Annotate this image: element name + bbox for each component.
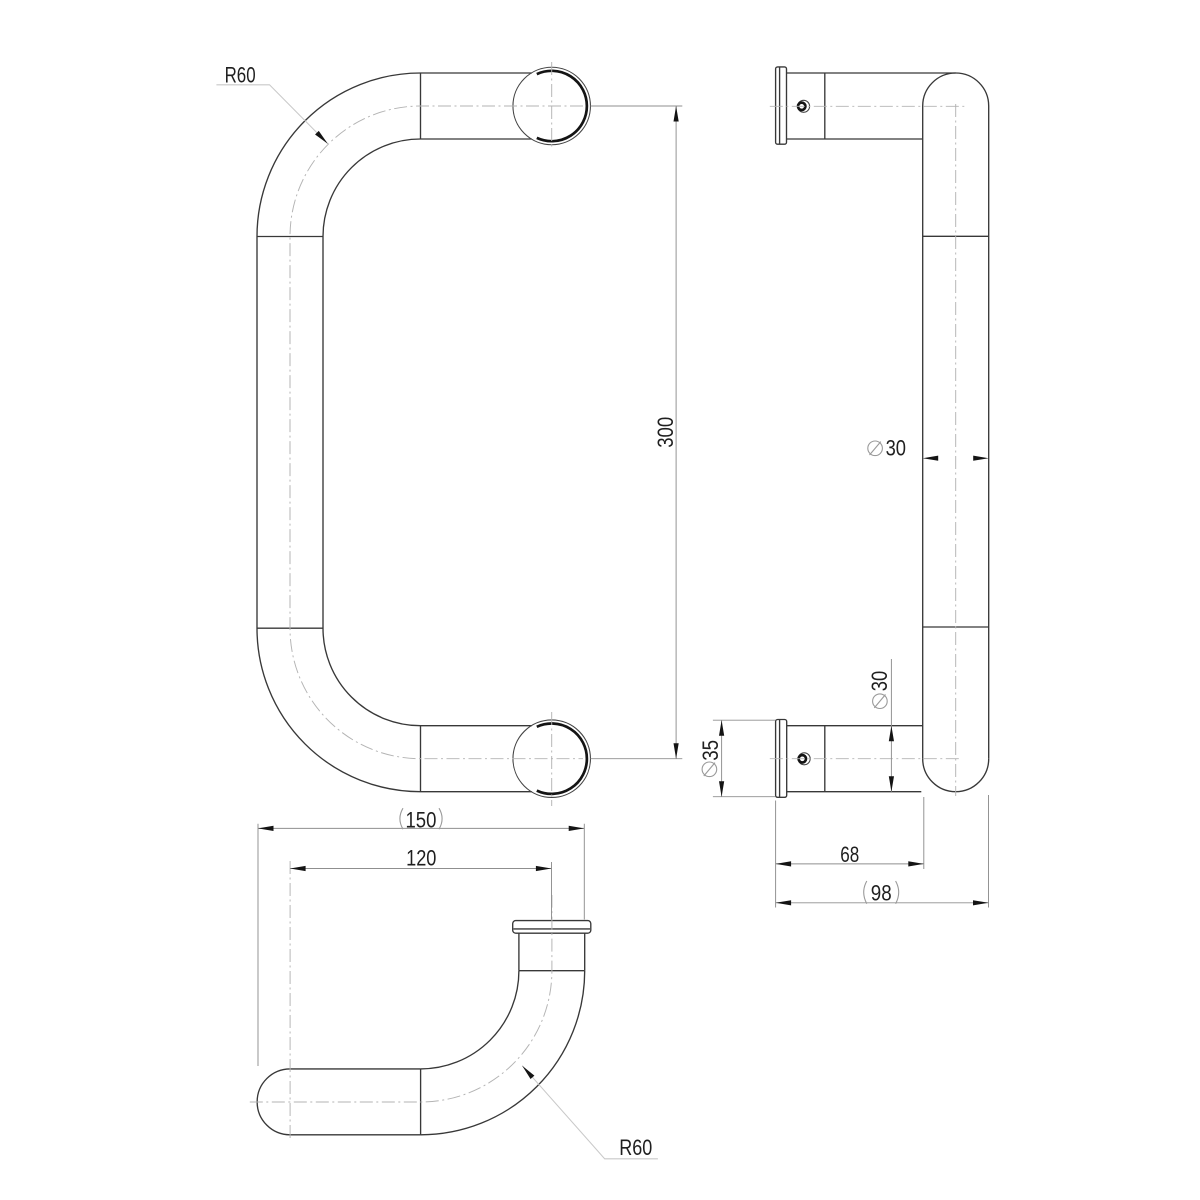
svg-text:300: 300	[653, 417, 678, 448]
svg-text:R60: R60	[619, 1135, 652, 1160]
svg-text:68: 68	[840, 842, 859, 867]
svg-text:120: 120	[406, 845, 436, 870]
svg-text:35: 35	[698, 740, 723, 761]
svg-text:30: 30	[886, 435, 906, 460]
svg-text:30: 30	[867, 671, 892, 691]
svg-text:98: 98	[871, 880, 892, 905]
svg-text:R60: R60	[225, 63, 256, 88]
svg-text:150: 150	[406, 808, 437, 833]
